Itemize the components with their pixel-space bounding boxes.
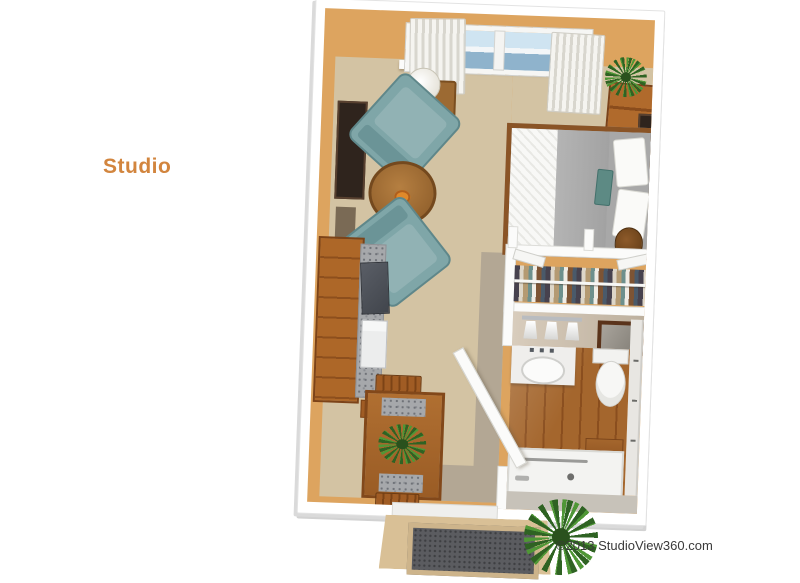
plan-interior [307, 8, 655, 514]
grab-bar [518, 457, 588, 463]
refrigerator-icon [360, 320, 388, 369]
light-shade [565, 322, 580, 341]
vanity-counter [511, 345, 576, 385]
accent-pillow [594, 169, 614, 206]
shower-drain [567, 473, 574, 480]
light-shade [523, 321, 538, 340]
placemat [381, 397, 426, 417]
closet-stub-wall-right [585, 230, 594, 250]
table-plant-centerpiece [378, 423, 427, 465]
studio-label: Studio [103, 155, 171, 179]
light-bar [522, 316, 582, 322]
shower-head [515, 475, 529, 481]
curtain-right [547, 32, 606, 115]
range-icon [360, 262, 390, 315]
doormat [406, 523, 540, 580]
faucet-icon [530, 348, 556, 355]
floorplan [297, 0, 666, 526]
sink-icon [521, 356, 566, 386]
window-mullion [494, 31, 504, 69]
placemat [379, 473, 424, 493]
dining-table [361, 390, 445, 501]
closet-stub-wall-left [509, 227, 518, 247]
vanity-light-fixture [521, 316, 582, 344]
light-shade [544, 321, 559, 340]
pillow [613, 137, 649, 188]
copyright-text: ©2013 StudioView360.com [556, 538, 713, 553]
